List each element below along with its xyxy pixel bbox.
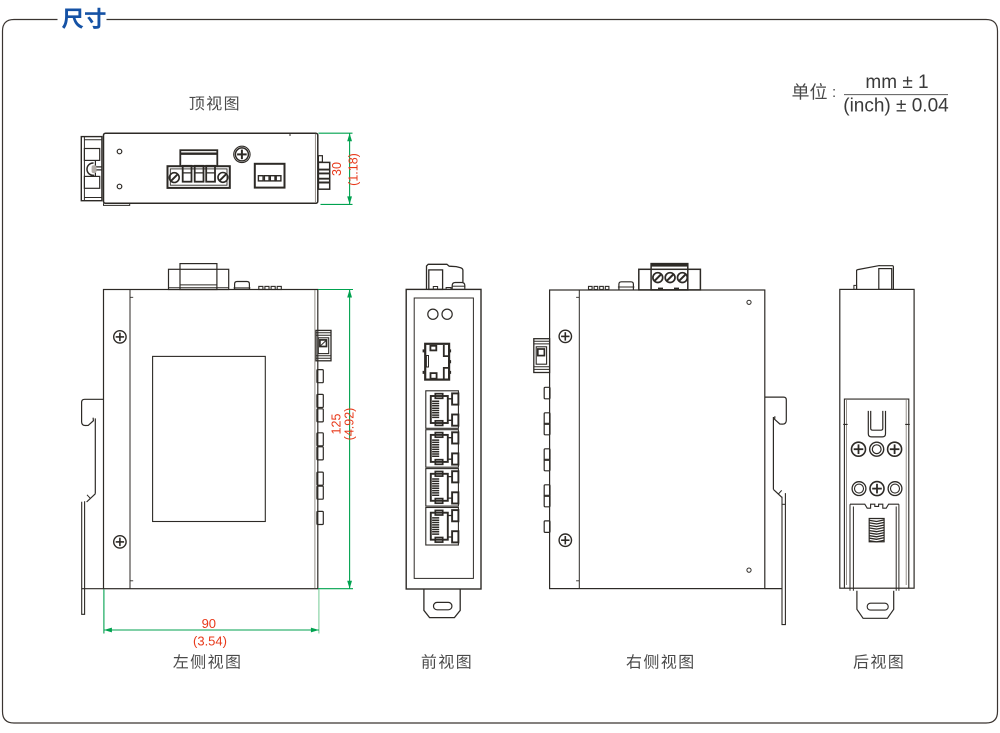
- svg-text:mm ± 1: mm ± 1: [865, 72, 928, 93]
- svg-text:90: 90: [202, 616, 216, 631]
- svg-text::: :: [832, 84, 836, 101]
- svg-text:(1.18): (1.18): [347, 153, 361, 186]
- svg-text:(4.92): (4.92): [342, 408, 356, 441]
- svg-text:30: 30: [330, 162, 344, 176]
- svg-text:(inch) ± 0.04: (inch) ± 0.04: [843, 96, 949, 117]
- svg-text:(3.54): (3.54): [193, 634, 227, 649]
